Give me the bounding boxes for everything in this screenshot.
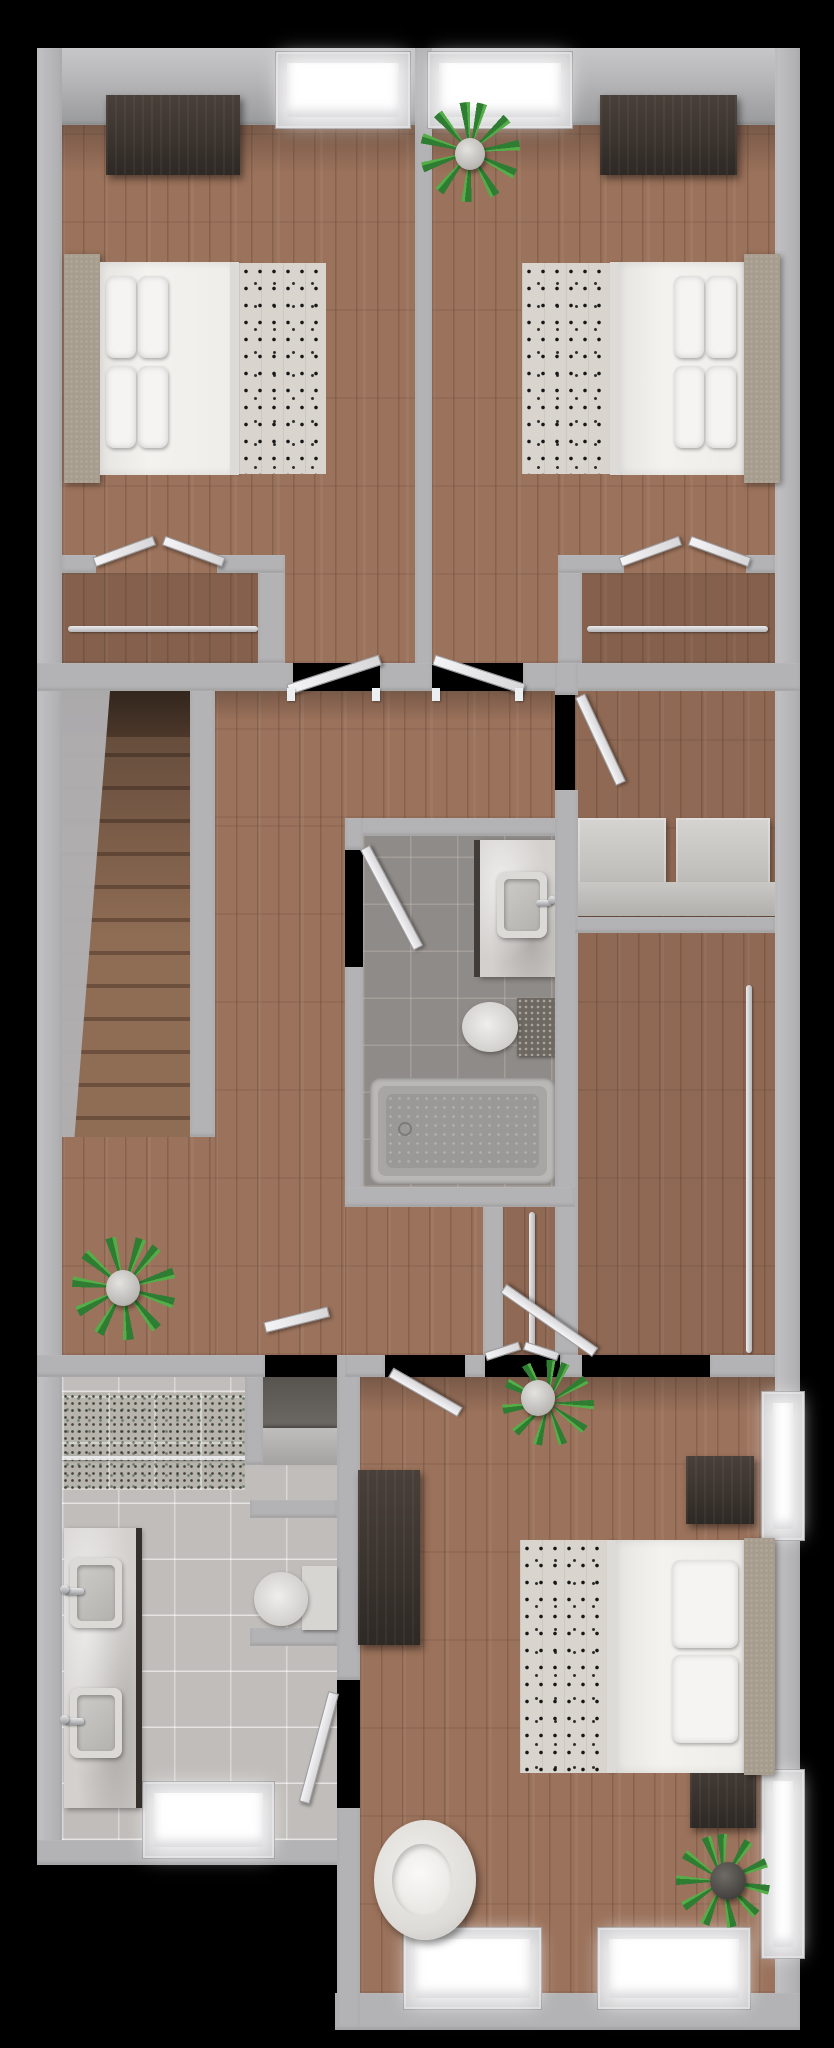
- ensuite-faucet-bottom-knob: [60, 1715, 69, 1724]
- closet2-rod: [587, 626, 768, 632]
- bedroom2-pillow-3: [674, 366, 704, 448]
- primary-bedroom-left-wall-upper: [337, 1355, 360, 1680]
- bedroom1-dresser: [106, 95, 240, 175]
- bedroom2-door-jamb-left: [432, 688, 440, 701]
- closet2-front-wall-a: [558, 555, 624, 573]
- hall-bath-wall-bottom: [345, 1187, 575, 1207]
- hall-bottom-wall-b: [345, 1355, 385, 1377]
- hallway-floor-left: [215, 818, 345, 1355]
- hallway-floor-top: [215, 691, 555, 818]
- reachin-closet-rod: [529, 1212, 535, 1352]
- bedroom2-throw-blanket: [522, 263, 610, 474]
- walkin-closet-floor: [575, 933, 775, 1355]
- bedroom2-pillow-4: [706, 366, 736, 448]
- ensuite-vanity-edge: [136, 1528, 142, 1808]
- exterior-wall-left: [37, 48, 62, 1865]
- ensuite-window-glass: [154, 1793, 263, 1847]
- bedroom1-window-glass: [287, 63, 399, 117]
- primary-armchair: [374, 1820, 476, 1940]
- bedroom2-duvet-fold: [610, 262, 619, 475]
- primary-bottom-window-right-glass: [609, 1939, 739, 1998]
- bedroom2-dresser: [600, 95, 737, 175]
- hall-bath-wall-top: [345, 818, 575, 836]
- laundry-wall-left-b: [555, 790, 578, 1355]
- bedroom1-bed: [64, 254, 326, 483]
- primary-bottom-window-right: [598, 1928, 750, 2009]
- washer: [578, 818, 666, 884]
- closet-stub-wall: [483, 1207, 503, 1355]
- linen-closet-shelf: [263, 1428, 337, 1465]
- hall-bath-sink-basin: [504, 879, 540, 931]
- bedroom2-bed: [522, 254, 780, 483]
- ensuite-toilet-bowl: [254, 1572, 308, 1626]
- hall-bath-toilet-tank: [517, 998, 555, 1056]
- primary-bottom-window-left-glass: [415, 1939, 530, 1998]
- laundry-closet-divider-wall: [575, 917, 775, 933]
- bedroom1-pillow-1: [106, 276, 136, 358]
- primary-throw-blanket: [520, 1540, 607, 1773]
- primary-duvet-fold: [607, 1540, 616, 1773]
- primary-bedroom-left-wall-lower: [337, 1808, 360, 2030]
- laundry-front-panel: [575, 882, 775, 916]
- closet1-front-wall-a: [62, 555, 96, 573]
- bedroom2-pillow-1: [674, 276, 704, 358]
- primary-long-dresser: [358, 1470, 420, 1645]
- walkin-closet-rod: [746, 985, 752, 1353]
- primary-plant-top-pot: [521, 1380, 555, 1416]
- bedroom2-headboard: [744, 254, 780, 483]
- bedroom1-pillow-4: [138, 366, 168, 448]
- hall-bottom-wall-e: [710, 1355, 775, 1377]
- ensuite-toilet-stub-upper: [250, 1500, 337, 1518]
- bedroom1-pillow-3: [106, 366, 136, 448]
- dryer: [676, 818, 770, 884]
- bedroom1-pillow-2: [138, 276, 168, 358]
- primary-armchair-cushion: [392, 1844, 451, 1916]
- bedroom1-door-jamb-right: [372, 688, 380, 701]
- hall-bath-wall-left-a: [345, 818, 363, 850]
- closet1-side-wall: [258, 573, 285, 663]
- bedroom1-throw-blanket: [239, 263, 326, 474]
- closet1-front-wall-b: [217, 555, 285, 573]
- hall-bottom-wall-c: [465, 1355, 485, 1377]
- staircase: [62, 691, 190, 1137]
- linen-niche-side-wall: [245, 1377, 263, 1465]
- hall-top-wall-a: [37, 663, 293, 691]
- bedroom2-plant-pot: [455, 138, 485, 170]
- primary-nightstand-top: [686, 1456, 754, 1524]
- hall-bath-wall-left-b: [345, 967, 363, 1207]
- bedroom1-door-jamb-left: [287, 688, 295, 701]
- closet1-rod: [68, 626, 258, 632]
- primary-plant-bottom-pot: [710, 1862, 746, 1900]
- bedroom1-duvet-fold: [230, 262, 239, 475]
- bathtub-drain: [398, 1122, 412, 1136]
- primary-right-window-lower-glass: [773, 1781, 793, 1947]
- bedroom1-window: [276, 52, 410, 128]
- primary-right-window-lower: [762, 1770, 804, 1958]
- floor-plan-scene: [0, 0, 834, 2048]
- shower-glass-panel: [62, 1456, 245, 1460]
- primary-bed: [520, 1538, 775, 1775]
- hallway-floor-below-bath: [345, 1207, 483, 1355]
- bathtub: [370, 1078, 555, 1184]
- ensuite-faucet-top-knob: [60, 1585, 69, 1594]
- primary-right-window-upper: [762, 1392, 804, 1540]
- stair-railing-wall: [190, 691, 215, 1137]
- bedroom2-pillow-2: [706, 276, 736, 358]
- hallway-plant-pot: [106, 1270, 140, 1306]
- bedroom2-door-jamb-right: [515, 688, 523, 701]
- bedroom1-headboard: [64, 254, 100, 483]
- primary-headboard: [744, 1538, 775, 1775]
- ensuite-window: [143, 1782, 274, 1858]
- ensuite-toilet-stub-lower: [250, 1628, 337, 1646]
- ensuite-shower-mosaic: [62, 1393, 245, 1490]
- hall-top-wall-b: [380, 663, 432, 691]
- laundry-wall-left-a: [555, 663, 578, 695]
- primary-bottom-window-left: [404, 1928, 541, 2009]
- hall-bath-vanity-edge: [474, 840, 480, 977]
- primary-pillow-1: [672, 1560, 738, 1648]
- hall-bottom-wall-a: [37, 1355, 265, 1377]
- closet2-side-wall: [558, 573, 582, 663]
- primary-pillow-2: [672, 1655, 738, 1743]
- hall-bath-toilet-bowl: [462, 1002, 518, 1052]
- primary-right-window-upper-glass: [773, 1403, 793, 1529]
